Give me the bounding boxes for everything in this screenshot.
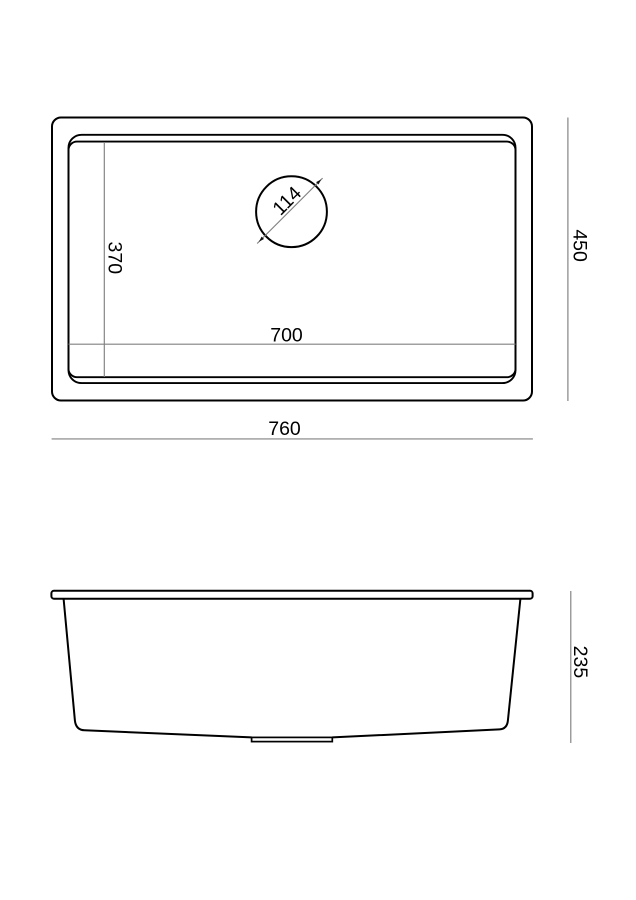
svg-text:760: 760 [268,418,301,440]
svg-text:450: 450 [568,229,590,262]
svg-text:370: 370 [104,242,126,275]
svg-text:114: 114 [269,182,307,220]
svg-text:700: 700 [270,325,303,347]
svg-text:235: 235 [569,646,591,679]
